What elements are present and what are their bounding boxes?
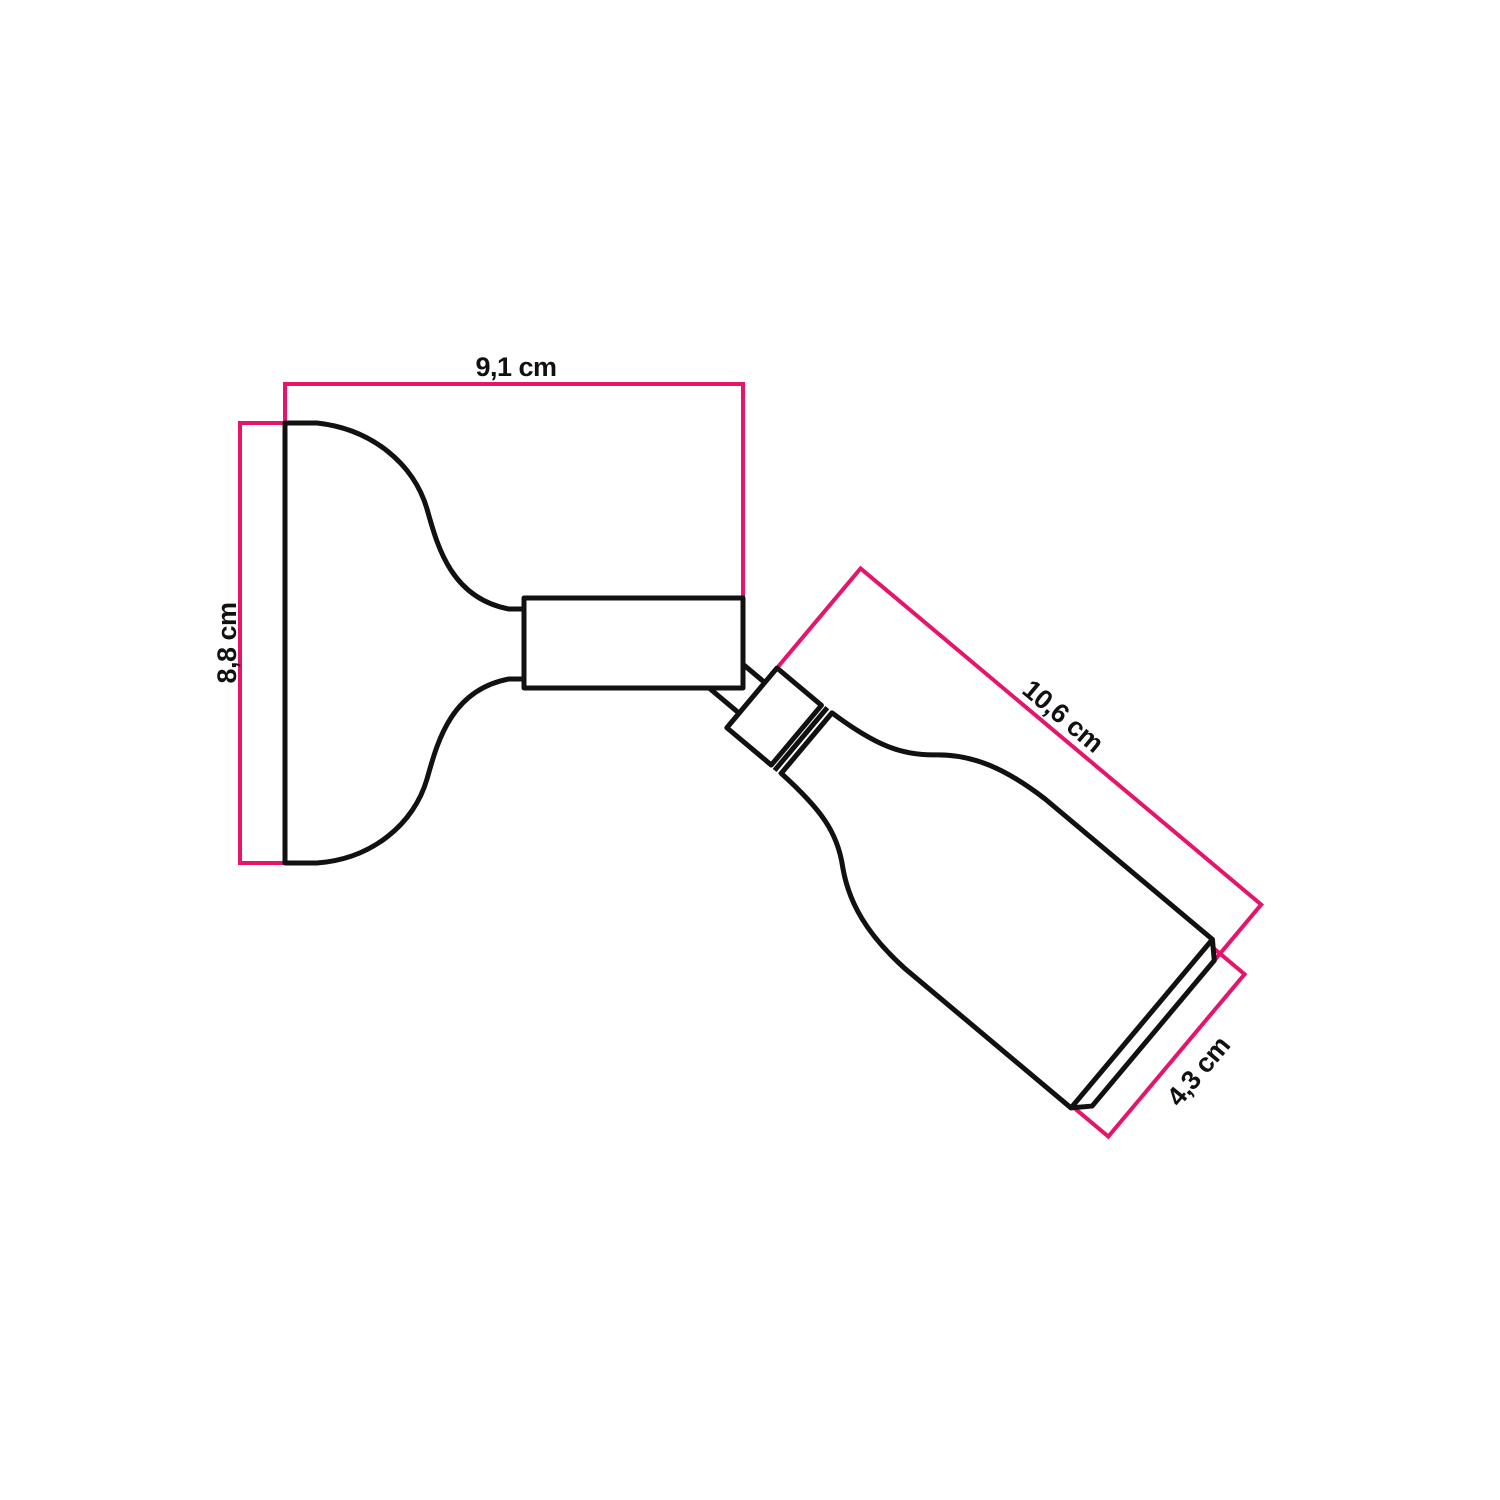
wall-plate-outline: [285, 423, 524, 863]
height-dimension-label: 8,8 cm: [212, 602, 242, 683]
angled-lamp-assembly: 10,6 cm 4,3 cm: [647, 515, 1338, 1165]
lamp-dimension-diagram: 9,1 cm 8,8 cm 10,6 cm 4,3 cm: [0, 0, 1500, 1500]
height-dimension-line: [240, 423, 285, 863]
wall-base-assembly: [285, 423, 743, 863]
height-dimension: 8,8 cm: [212, 423, 285, 863]
pivot-cylinder-outline: [524, 598, 743, 688]
dimension-diagram-page: 9,1 cm 8,8 cm 10,6 cm 4,3 cm: [0, 0, 1500, 1500]
diameter-dimension-label: 4,3 cm: [1161, 1031, 1236, 1112]
lamp-holder-outline: [736, 658, 1212, 1107]
width-dimension-label: 9,1 cm: [475, 352, 556, 382]
length-dimension-label: 10,6 cm: [1017, 674, 1110, 758]
